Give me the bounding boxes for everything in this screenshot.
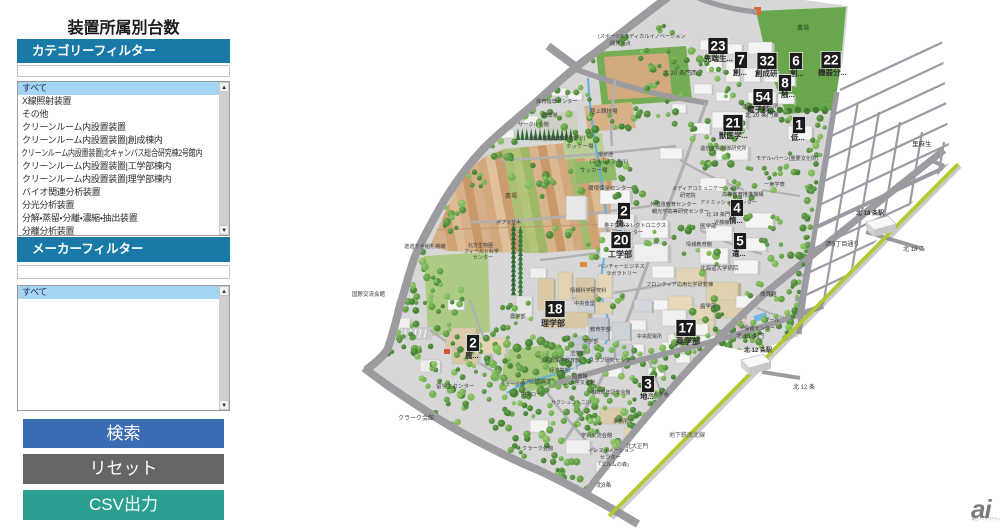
svg-text:54: 54 bbox=[755, 90, 771, 105]
svg-text:国際交流会館: 国際交流会館 bbox=[352, 290, 386, 298]
svg-text:理学部: 理学部 bbox=[541, 318, 565, 328]
svg-text:2: 2 bbox=[469, 336, 477, 351]
svg-text:北 13 条門: 北 13 条門 bbox=[736, 332, 764, 340]
svg-text:サッカー場: サッカー場 bbox=[580, 166, 608, 174]
svg-text:北 18 条: 北 18 条 bbox=[903, 245, 925, 253]
svg-text:4: 4 bbox=[733, 201, 741, 216]
svg-text:里麻生: 里麻生 bbox=[912, 139, 932, 148]
svg-text:クラーク会館: クラーク会館 bbox=[398, 414, 434, 422]
svg-text:5: 5 bbox=[736, 234, 744, 249]
svg-text:センター: センター bbox=[473, 254, 493, 261]
svg-text:創...: 創... bbox=[732, 67, 747, 77]
svg-text:アドミッションセンター: アドミッションセンター bbox=[700, 198, 757, 206]
svg-text:ポプラ並木: ポプラ並木 bbox=[496, 219, 521, 226]
svg-text:電子科...: 電子科... bbox=[747, 104, 776, 114]
svg-text:情報教育館: 情報教育館 bbox=[686, 240, 712, 248]
svg-text:北 18 条駅: 北 18 条駅 bbox=[856, 209, 885, 217]
svg-text:大学文書館: 大学文書館 bbox=[570, 379, 595, 386]
svg-text:体育館: 体育館 bbox=[760, 290, 777, 298]
svg-text:環状通: 環状通 bbox=[598, 151, 613, 158]
svg-text:北海道大学病院: 北海道大学病院 bbox=[700, 264, 739, 272]
svg-text:北 12 条駅: 北 12 条駅 bbox=[744, 346, 773, 354]
svg-text:野球場: 野球場 bbox=[542, 111, 558, 119]
svg-text:法学部: 法学部 bbox=[570, 349, 586, 357]
svg-text:歯学部: 歯学部 bbox=[700, 302, 717, 310]
svg-text:32: 32 bbox=[759, 54, 774, 69]
svg-text:開発拠点: 開発拠点 bbox=[610, 39, 631, 47]
svg-text:一東学寮: 一東学寮 bbox=[764, 180, 785, 188]
svg-text:地...: 地... bbox=[640, 391, 654, 401]
svg-text:機器分...: 機器分... bbox=[818, 67, 847, 77]
svg-text:農場: 農場 bbox=[797, 24, 809, 32]
svg-text:環境保全センター: 環境保全センター bbox=[588, 184, 632, 192]
svg-text:メディアコミュニケーション: メディアコミュニケーション bbox=[672, 184, 739, 192]
svg-text:21: 21 bbox=[725, 116, 741, 131]
svg-text:ベンチャービジネス: ベンチャービジネス bbox=[598, 262, 645, 270]
svg-text:文学部: 文学部 bbox=[583, 337, 599, 345]
svg-text:8: 8 bbox=[781, 76, 789, 91]
svg-text:獣医学...: 獣医学... bbox=[719, 130, 748, 140]
svg-text:図書館: 図書館 bbox=[572, 372, 588, 380]
svg-text:薬学部: 薬学部 bbox=[675, 336, 700, 346]
svg-text:100周年記念会館: 100周年記念会館 bbox=[592, 389, 630, 396]
svg-text:陸上競技場: 陸上競技場 bbox=[590, 107, 618, 115]
svg-text:「エルムの森」: 「エルムの森」 bbox=[596, 460, 632, 468]
svg-text:情...: 情... bbox=[728, 215, 743, 225]
svg-text:プール: プール bbox=[764, 317, 780, 324]
svg-text:研究院: 研究院 bbox=[680, 191, 696, 199]
svg-text:センター: センター bbox=[600, 453, 621, 461]
svg-text:6: 6 bbox=[792, 54, 800, 69]
svg-text:スラブ研究センター: スラブ研究センター bbox=[589, 356, 636, 364]
svg-text:7: 7 bbox=[737, 53, 745, 68]
svg-text:2: 2 bbox=[620, 204, 628, 219]
svg-text:地下鉄南北線: 地下鉄南北線 bbox=[669, 431, 705, 439]
svg-text:外国語教育センター: 外国語教育センター bbox=[650, 200, 697, 208]
svg-text:中央食堂: 中央食堂 bbox=[574, 299, 595, 307]
svg-text:フロンティア応用化学研究棟: フロンティア応用化学研究棟 bbox=[646, 280, 714, 288]
svg-text:23: 23 bbox=[710, 39, 726, 54]
svg-text:古河記念講堂: 古河記念講堂 bbox=[521, 378, 551, 385]
svg-text:ホッケー場: ホッケー場 bbox=[566, 142, 594, 150]
svg-text:(北海道遺産管理協委セ): (北海道遺産管理協委セ) bbox=[530, 134, 586, 142]
svg-text:北8条: 北8条 bbox=[596, 481, 611, 489]
svg-text:経済学部: 経済学部 bbox=[549, 366, 570, 374]
svg-text:学術交流会館: 学術交流会館 bbox=[581, 431, 612, 439]
svg-text:中央ローン: 中央ローン bbox=[521, 391, 546, 398]
svg-text:北方生物圏: 北方生物圏 bbox=[468, 242, 493, 249]
svg-text:農...: 農... bbox=[465, 350, 479, 360]
svg-text:工学部: 工学部 bbox=[608, 249, 632, 259]
svg-text:道道下手稲札幌線: 道道下手稲札幌線 bbox=[404, 242, 446, 250]
svg-text:17: 17 bbox=[678, 321, 693, 336]
svg-text:低...: 低... bbox=[790, 132, 805, 142]
svg-text:サクシュコトニ川: サクシュコトニ川 bbox=[551, 400, 591, 406]
svg-text:公共政策学教育部: 公共政策学教育部 bbox=[540, 357, 580, 364]
svg-text:西5丁目通り: 西5丁目通り bbox=[826, 240, 859, 248]
svg-text:観光学高等研究センター: 観光学高等研究センター bbox=[652, 207, 709, 215]
svg-text:(スポーツ&メディカルイノベーション: (スポーツ&メディカルイノベーション bbox=[598, 32, 686, 40]
svg-text:(エルムトンネル): (エルムトンネル) bbox=[590, 159, 628, 165]
svg-text:留学生センター: 留学生センター bbox=[436, 382, 475, 390]
svg-text:北 20 条門西: 北 20 条門西 bbox=[663, 69, 697, 77]
svg-text:フィールド科学: フィールド科学 bbox=[464, 248, 499, 255]
svg-text:北大正門: 北大正門 bbox=[626, 442, 649, 450]
svg-text:ラボラトリー: ラボラトリー bbox=[606, 269, 637, 277]
svg-text:20: 20 bbox=[613, 233, 628, 248]
svg-text:遺伝子病制御研究所: 遺伝子病制御研究所 bbox=[700, 144, 747, 152]
svg-text:保健センター: 保健センター bbox=[744, 324, 775, 332]
svg-text:22: 22 bbox=[823, 53, 838, 68]
svg-text:北 18 条門: 北 18 条門 bbox=[706, 210, 730, 218]
svg-text:クラーク会館: クラーク会館 bbox=[522, 444, 553, 452]
svg-text:北 12 条: 北 12 条 bbox=[793, 383, 815, 391]
svg-text:触...: 触... bbox=[780, 89, 795, 99]
svg-text:農学部: 農学部 bbox=[510, 312, 526, 320]
svg-text:遺...: 遺... bbox=[731, 248, 746, 258]
svg-text:情...: 情... bbox=[615, 218, 630, 228]
svg-text:先端生...: 先端生... bbox=[704, 53, 733, 63]
svg-text:事務所: 事務所 bbox=[613, 418, 628, 425]
svg-text:3: 3 bbox=[644, 377, 652, 392]
svg-text:近藤線: 近藤線 bbox=[714, 218, 730, 226]
svg-text:量子集積エレクトロニクス: 量子集積エレクトロニクス bbox=[604, 221, 666, 229]
svg-text:情報科学研究科: 情報科学研究科 bbox=[570, 286, 606, 294]
svg-text:体育指導センター: 体育指導センター bbox=[536, 97, 578, 105]
svg-text:サークル会館: サークル会館 bbox=[518, 120, 549, 128]
svg-text:農場: 農場 bbox=[505, 192, 517, 200]
svg-text:中央配電所: 中央配電所 bbox=[637, 333, 662, 340]
svg-text:18: 18 bbox=[547, 302, 563, 317]
svg-text:教育学部: 教育学部 bbox=[590, 325, 611, 333]
svg-text:モデル・バーン(重要文化財): モデル・バーン(重要文化財) bbox=[756, 154, 818, 162]
svg-text:1: 1 bbox=[795, 118, 803, 133]
